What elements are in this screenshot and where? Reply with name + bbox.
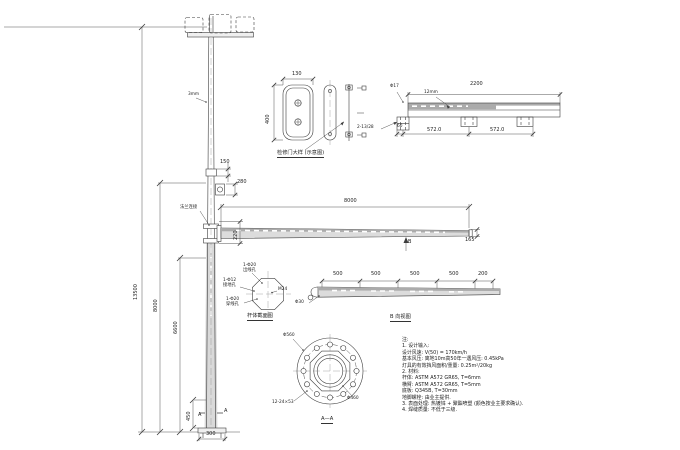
dim-arm-8000-label: 8000 <box>344 199 357 205</box>
dim-450-label: 450 <box>187 411 193 421</box>
beam-plate-label: 12mm <box>424 91 438 96</box>
beam-length-label: 2200 <box>470 82 483 88</box>
pole-section-caption: 杆体截面图 <box>247 314 273 321</box>
beam-60-label: 60 <box>397 125 402 130</box>
cad-sheet: 13500 8000 6600 3mm 150 280 法兰连接 8000 22… <box>0 0 680 450</box>
dim-8000-label: 8000 <box>154 299 160 312</box>
door-width-label: 130 <box>292 72 302 78</box>
section-a-right-label: A <box>224 409 227 415</box>
beam-side-view-linework <box>308 279 500 303</box>
section-a-left-label: A <box>198 413 201 419</box>
section-hole-bottom-name: 穿线孔 <box>226 303 239 308</box>
drawing-linework <box>0 0 680 450</box>
bview-dim3-label: 500 <box>410 272 420 278</box>
pole-section-linework <box>240 271 291 318</box>
view-b-marker-label: B <box>408 240 411 246</box>
dim-150-label: 150 <box>220 160 230 166</box>
flange-caption: A—A <box>321 417 333 424</box>
flange-bolt-circle-label: Φ460 <box>347 397 359 402</box>
dim-arm-root-label: 220 <box>234 230 240 240</box>
flange-outer-dia-label: Φ560 <box>283 334 295 339</box>
bview-dim5-label: 200 <box>478 272 488 278</box>
bview-dim4-label: 500 <box>449 272 459 278</box>
dim-6600-label: 6600 <box>174 321 180 334</box>
door-detail-linework <box>272 77 366 150</box>
dim-total-height-label: 13500 <box>134 284 140 300</box>
bview-dim1-label: 500 <box>333 272 343 278</box>
top-note-label: 3mm <box>188 93 199 98</box>
beam-slot-label: 2-13/28 <box>357 126 374 131</box>
joint-label: 法兰连接 <box>180 206 197 211</box>
dim-arm-tip-label: 165 <box>465 238 475 244</box>
bview-dim2-label: 500 <box>371 272 381 278</box>
note-line: 4. 焊缝质量: 不低于三级. <box>402 407 570 413</box>
bview-caption: B 向视图 <box>390 315 411 322</box>
beam-span1-label: 572.0 <box>427 128 441 134</box>
section-bolt-label: M24 <box>278 288 287 293</box>
door-height-label: 400 <box>266 114 272 124</box>
beam-top-view-linework <box>381 92 562 137</box>
section-hole-left-name: 接地孔 <box>223 284 236 289</box>
beam-span2-label: 572.0 <box>490 128 504 134</box>
notes-block: 注: 1. 设计输入: 设计风速: V(50) = 170km/h 基本风压: … <box>402 337 570 414</box>
dim-300-label: 300 <box>206 432 216 438</box>
bview-hole-label: Φ30 <box>295 301 304 306</box>
beam-hole-label: Φ17 <box>390 85 399 90</box>
dim-280-label: 280 <box>237 180 247 186</box>
door-detail-caption: 检修门大样 (示意图) <box>277 151 324 158</box>
flange-slot-label: 12-24×53 <box>272 401 294 406</box>
section-hole-top-name: 出线孔 <box>243 269 256 274</box>
